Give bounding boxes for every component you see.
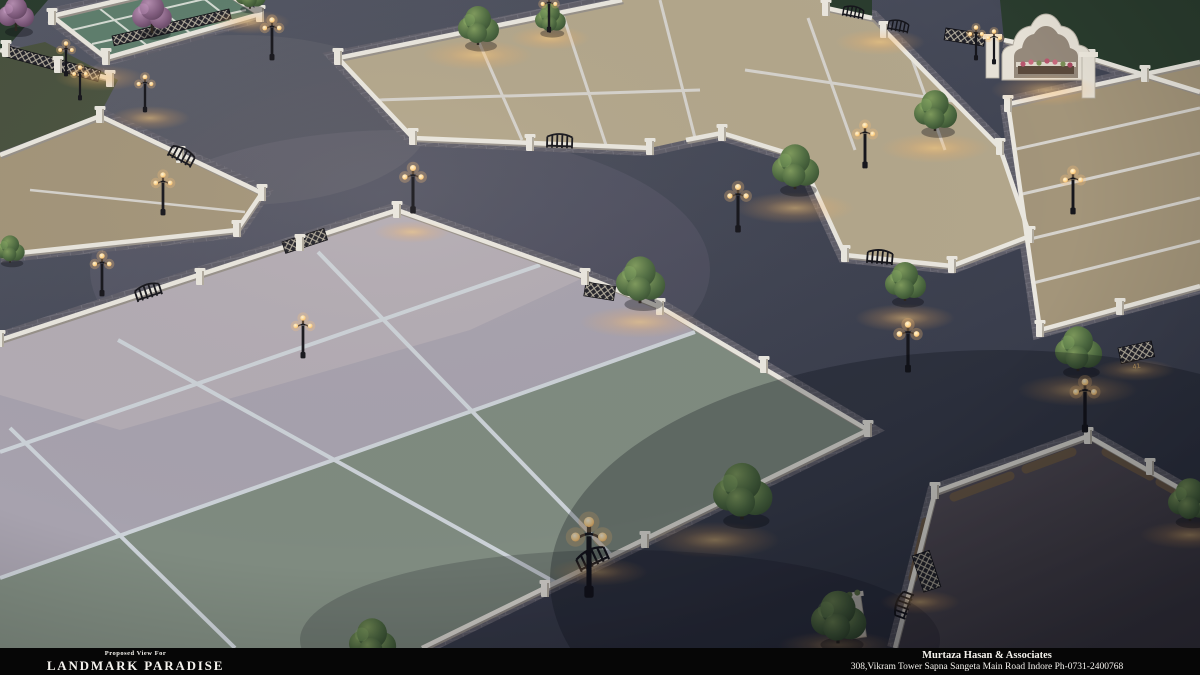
- consultant-block: Murtaza Hasan & Associates 308,Vikram To…: [802, 650, 1172, 673]
- consultant-name: Murtaza Hasan & Associates: [802, 650, 1172, 662]
- project-title-block: Proposed View For LANDMARK PARADISE: [38, 650, 233, 673]
- consultant-address: 308,Vikram Tower Sapna Sangeta Main Road…: [802, 662, 1172, 673]
- site-render: 41: [0, 0, 1200, 648]
- caption-bar: Proposed View For LANDMARK PARADISE Murt…: [0, 648, 1200, 675]
- render-canvas: 41: [0, 0, 1200, 675]
- project-pretitle: Proposed View For: [38, 650, 233, 658]
- project-title: LANDMARK PARADISE: [38, 658, 233, 673]
